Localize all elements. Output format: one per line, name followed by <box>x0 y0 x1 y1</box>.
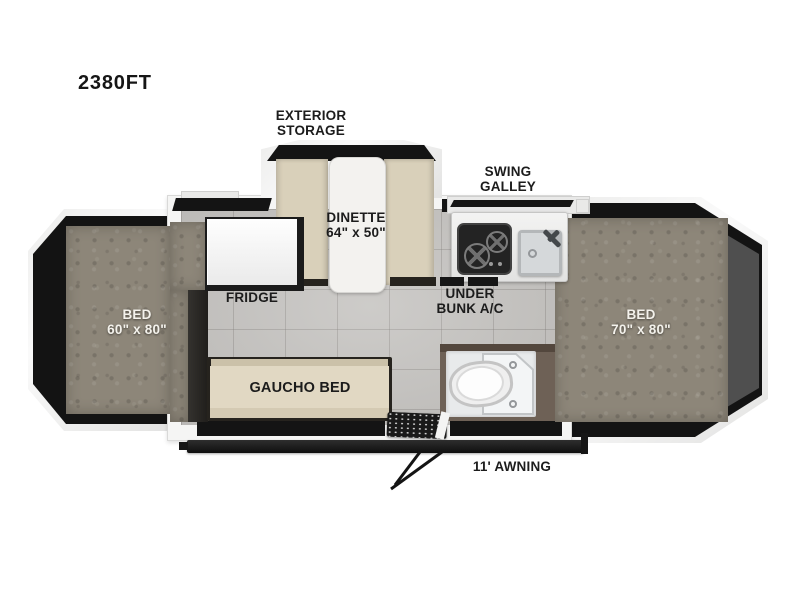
bed-left-line1: BED <box>107 307 167 322</box>
exterior-storage-line1: EXTERIOR <box>276 108 347 123</box>
shower-drain-icon <box>509 400 517 408</box>
stove-knob-dot <box>489 262 493 266</box>
stove-knob-dot <box>498 262 502 266</box>
dinette-label: DINETTE 64" x 50" <box>326 210 386 240</box>
window-band-bottom-left <box>197 421 385 436</box>
bed-right-line2: 70" x 80" <box>611 322 671 337</box>
gaucho-bed-lip <box>210 408 389 418</box>
floorplan-canvas: 2380FT <box>0 0 800 600</box>
window-band-top-left <box>172 198 272 211</box>
galley-rail-end <box>576 199 589 213</box>
awning-arm-icon <box>378 449 462 493</box>
swing-galley-line2: GALLEY <box>480 179 536 194</box>
under-bunk-ac-unit <box>440 277 464 286</box>
burner-large-icon <box>464 243 490 269</box>
left-bed-mattress-edge <box>170 290 188 422</box>
bed-left-line2: 60" x 80" <box>107 322 167 337</box>
under-bunk-ac-line2: BUNK A/C <box>436 301 503 316</box>
dinette-line1: DINETTE <box>326 210 386 225</box>
exterior-storage-line2: STORAGE <box>276 123 347 138</box>
under-bunk-ac-line1: UNDER <box>436 286 503 301</box>
dinette-bench-right <box>384 159 434 285</box>
swing-galley-label: SWING GALLEY <box>480 164 536 194</box>
fridge-icon <box>207 219 297 285</box>
left-wall-cabinet <box>188 290 208 422</box>
under-bunk-ac-label: UNDER BUNK A/C <box>436 286 503 316</box>
bed-right-line1: BED <box>611 307 671 322</box>
swing-galley-line1: SWING <box>480 164 536 179</box>
left-bed-mattress-extension <box>170 222 207 290</box>
awning-bar-endcap-left <box>179 442 188 450</box>
dinette-line2: 64" x 50" <box>326 225 386 240</box>
bed-left-label: BED 60" x 80" <box>107 307 167 337</box>
galley-rail-stripe <box>450 200 574 207</box>
awning-label: 11' AWNING <box>473 459 551 474</box>
window-band-bottom-right <box>450 421 562 436</box>
shower-drain-icon <box>509 361 517 369</box>
dinette-bench-right-base <box>390 277 436 286</box>
awning-bar-bracket-right <box>581 433 588 454</box>
bed-right-label: BED 70" x 80" <box>611 307 671 337</box>
model-title: 2380FT <box>78 72 152 95</box>
under-bunk-ac-unit <box>468 277 498 286</box>
burner-small-icon <box>486 231 508 253</box>
gaucho-bed-label: GAUCHO BED <box>249 381 350 396</box>
fridge-label: FRIDGE <box>226 290 278 305</box>
exterior-storage-label: EXTERIOR STORAGE <box>276 108 347 138</box>
sink-drain-icon <box>528 249 537 258</box>
